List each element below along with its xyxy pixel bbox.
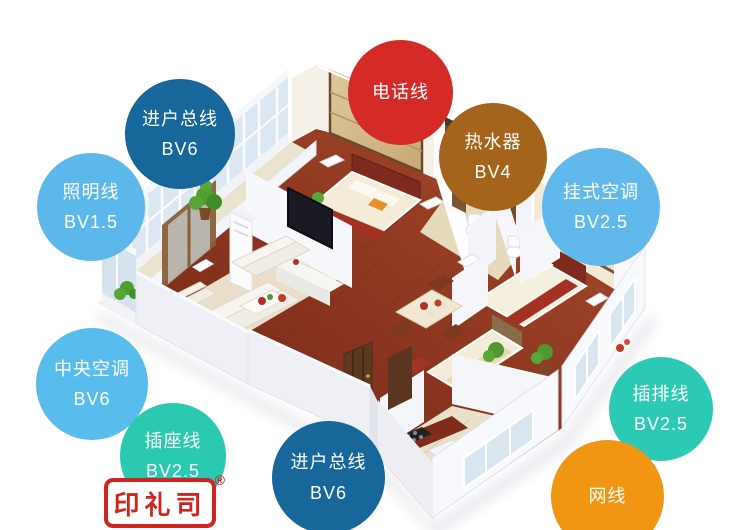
badge-label: 插排线 — [633, 381, 690, 407]
registered-trademark-mark: ® — [215, 472, 225, 488]
badge-label: 进户总线 — [142, 106, 218, 132]
badge-lighting-line: 照明线 BV1.5 — [37, 153, 145, 261]
brand-seal-text: 印礼司 — [113, 485, 206, 522]
badge-spec: BV2.5 — [634, 411, 688, 437]
badge-wall-mounted-ac: 挂式空调 BV2.5 — [542, 148, 660, 266]
badge-label: 电话线 — [372, 79, 429, 105]
badge-label: 插座线 — [145, 428, 202, 454]
badge-spec: BV1.5 — [64, 209, 118, 235]
infographic-canvas: 进户总线 BV6 照明线 BV1.5 电话线 热水器 BV4 挂式空调 BV2.… — [0, 0, 737, 530]
badge-spec: BV6 — [310, 480, 347, 506]
badge-spec: BV6 — [73, 386, 110, 412]
badge-telephone-line: 电话线 — [348, 40, 453, 145]
badge-label: 网线 — [589, 483, 627, 509]
badge-spec: BV2.5 — [574, 209, 628, 235]
badge-water-heater: 热水器 BV4 — [439, 103, 547, 211]
badge-label: 中央空调 — [54, 356, 130, 382]
badge-label: 热水器 — [465, 129, 522, 155]
badge-spec: BV6 — [161, 136, 198, 162]
badge-incoming-main-line-top: 进户总线 BV6 — [125, 79, 235, 189]
brand-seal: 印礼司 ® — [104, 478, 216, 528]
badge-incoming-main-line-bottom: 进户总线 BV6 — [272, 421, 385, 530]
badge-label: 照明线 — [63, 179, 120, 205]
badge-label: 进户总线 — [291, 449, 367, 475]
badge-spec: BV4 — [474, 159, 511, 185]
badge-label: 挂式空调 — [563, 179, 639, 205]
